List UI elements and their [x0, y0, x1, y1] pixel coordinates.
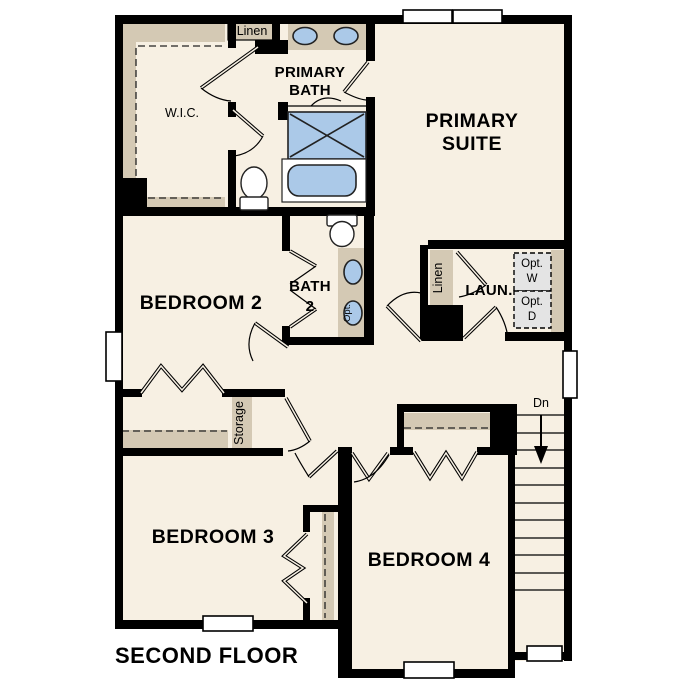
- sink-icon: [344, 260, 362, 284]
- window-hall: [563, 351, 577, 398]
- floor-title: SECOND FLOOR: [115, 643, 298, 668]
- optional-dryer-label-1: Opt.: [521, 296, 543, 308]
- bedroom2-closet-shelf: [122, 430, 228, 448]
- toilet-icon: [241, 167, 267, 199]
- floor-plan-drawing: W.I.C. Linen PRIMARY BATH PRIMARY SUITE …: [0, 0, 687, 687]
- window-bedroom2: [106, 332, 122, 381]
- primary-bath-label-2: BATH: [289, 82, 331, 99]
- toilet-icon: [330, 222, 354, 247]
- optional-washer-label-1: Opt.: [521, 258, 543, 270]
- storage-label: Storage: [232, 401, 246, 445]
- bedroom4-label: BEDROOM 4: [368, 549, 491, 571]
- linen-upper-label: Linen: [237, 24, 268, 38]
- stairs-down-label: Dn: [533, 396, 549, 410]
- floor-plan-page: W.I.C. Linen PRIMARY BATH PRIMARY SUITE …: [0, 0, 687, 687]
- sink-icon: [293, 28, 317, 45]
- laundry-label: LAUN.: [465, 282, 512, 299]
- optional-dryer-label-2: D: [528, 311, 536, 323]
- primary-bath-label-1: PRIMARY: [275, 64, 346, 81]
- window-stairwell: [527, 646, 562, 661]
- bathtub-icon: [288, 165, 356, 196]
- wic-label: W.I.C.: [165, 106, 199, 120]
- window-bedroom4: [404, 662, 454, 678]
- laundry-counter: [551, 250, 564, 333]
- primary-suite-label-2: SUITE: [442, 133, 502, 155]
- optional-washer-label-2: W: [527, 273, 538, 285]
- wic-shelf-top: [123, 24, 225, 42]
- bath2-label-2: 2: [306, 298, 315, 315]
- toilet-tank: [240, 197, 268, 210]
- window-bedroom3: [203, 616, 253, 631]
- optional-sink-label: Opt.: [342, 304, 353, 322]
- window-primary-suite-left: [403, 10, 452, 23]
- bedroom3-label: BEDROOM 3: [152, 526, 275, 548]
- primary-suite-label-1: PRIMARY: [426, 110, 519, 132]
- sink-icon: [334, 28, 358, 45]
- linen-laundry-label: Linen: [431, 263, 445, 294]
- wic-shelf-left: [123, 24, 136, 178]
- bedroom2-label: BEDROOM 2: [140, 292, 263, 314]
- window-primary-suite-right: [453, 10, 502, 23]
- bedroom3-closet-shelf: [322, 512, 334, 620]
- bath2-label-1: BATH: [289, 278, 331, 295]
